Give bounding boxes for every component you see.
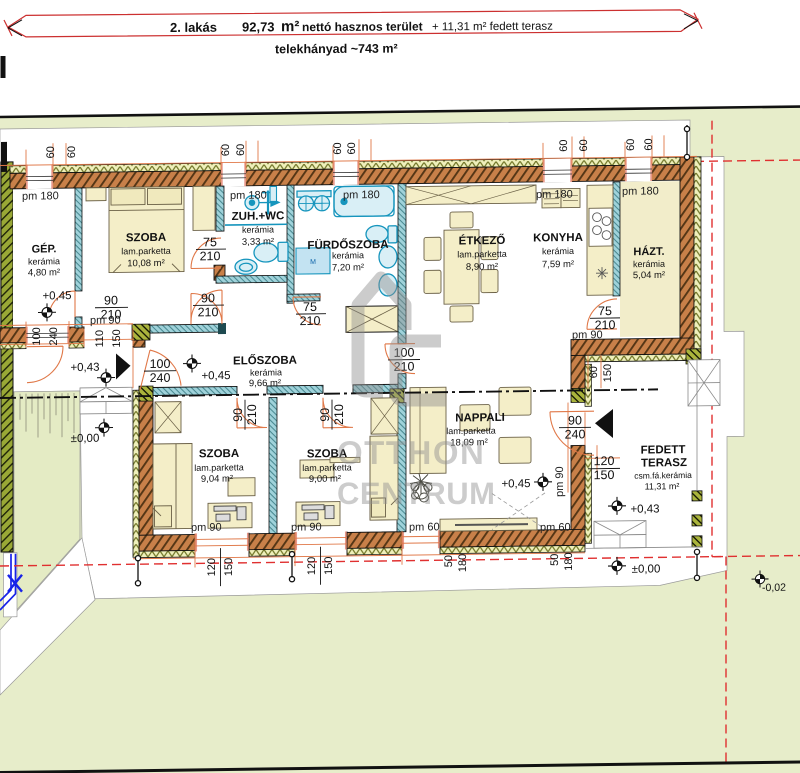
svg-text:90: 90 [201, 291, 215, 305]
svg-text:60: 60 [235, 144, 247, 156]
svg-text:60: 60 [66, 146, 78, 158]
svg-text:5,04 m²: 5,04 m² [633, 270, 665, 281]
svg-text:75: 75 [303, 300, 317, 314]
svg-text:+0,45: +0,45 [501, 478, 530, 490]
svg-text:75: 75 [598, 304, 612, 318]
svg-text:csm.fá.kerámia: csm.fá.kerámia [634, 470, 692, 481]
svg-text:kerámia: kerámia [633, 259, 665, 269]
svg-text:kerámia: kerámia [250, 367, 282, 377]
svg-text:HÁZT.: HÁZT. [633, 245, 664, 258]
svg-text:210: 210 [101, 307, 122, 321]
svg-text:kerámia: kerámia [542, 246, 574, 256]
svg-text:SZOBA: SZOBA [199, 448, 239, 461]
svg-text:pm 180: pm 180 [622, 185, 659, 197]
svg-text:±0,00: ±0,00 [71, 433, 100, 445]
svg-text:60: 60 [332, 142, 344, 154]
svg-text:120: 120 [594, 454, 615, 468]
svg-text:9,04 m²: 9,04 m² [201, 473, 233, 484]
svg-text:100: 100 [150, 357, 171, 371]
svg-text:pm 180: pm 180 [343, 189, 380, 201]
svg-text:+0,45: +0,45 [201, 370, 230, 382]
svg-text:110: 110 [94, 330, 106, 348]
svg-text:pm 60: pm 60 [409, 521, 440, 533]
svg-text:60: 60 [558, 139, 570, 151]
svg-text:ÉTKEZŐ: ÉTKEZŐ [459, 233, 506, 248]
svg-text:240: 240 [48, 327, 60, 346]
svg-text:120: 120 [206, 558, 218, 577]
svg-text:50: 50 [443, 555, 455, 567]
svg-text:90: 90 [104, 293, 118, 307]
svg-text:+0,43: +0,43 [70, 362, 99, 374]
svg-text:92,73: 92,73 [242, 19, 275, 34]
svg-text:3,33 m²: 3,33 m² [242, 236, 274, 247]
svg-text:60: 60 [588, 366, 600, 378]
svg-text:pm 60: pm 60 [540, 522, 571, 534]
svg-text:120: 120 [306, 557, 318, 576]
svg-text:NAPPALI: NAPPALI [455, 412, 505, 425]
svg-text:50: 50 [549, 554, 561, 566]
svg-text:pm 180: pm 180 [22, 190, 59, 202]
svg-text:75: 75 [203, 235, 217, 249]
svg-text:90: 90 [568, 413, 582, 427]
svg-text:8,90 m²: 8,90 m² [466, 261, 498, 272]
svg-text:60: 60 [220, 144, 232, 156]
svg-text:210: 210 [200, 249, 221, 263]
svg-text:+ 11,31 m² fedett terasz: + 11,31 m² fedett terasz [432, 21, 553, 34]
svg-text:150: 150 [602, 364, 614, 383]
svg-text:kerámia: kerámia [242, 224, 274, 234]
svg-text:150: 150 [594, 468, 615, 482]
svg-text:lam.parketta: lam.parketta [457, 249, 507, 260]
svg-text:11,31 m²: 11,31 m² [645, 481, 680, 491]
svg-text:pm 90: pm 90 [291, 521, 322, 533]
svg-text:telekhányad ~743 m²: telekhányad ~743 m² [275, 42, 398, 57]
svg-text:180: 180 [563, 552, 575, 571]
svg-text:4,80 m²: 4,80 m² [28, 267, 60, 278]
svg-text:CENTRUM: CENTRUM [337, 476, 496, 511]
svg-text:nettó hasznos terület: nettó hasznos terület [302, 19, 423, 34]
svg-text:7,20 m²: 7,20 m² [332, 262, 364, 273]
svg-text:M: M [310, 259, 316, 266]
svg-text:210: 210 [245, 404, 259, 425]
svg-text:pm 180: pm 180 [536, 189, 573, 201]
svg-text:7,59 m²: 7,59 m² [542, 259, 574, 270]
svg-text:150: 150 [323, 556, 335, 575]
svg-text:240: 240 [565, 427, 586, 441]
svg-text:90: 90 [231, 408, 245, 422]
svg-text:210: 210 [198, 305, 219, 319]
svg-text:210: 210 [595, 318, 616, 332]
svg-text:60: 60 [45, 146, 57, 158]
svg-text:10,08 m²: 10,08 m² [127, 258, 165, 269]
svg-text:60: 60 [578, 139, 590, 151]
svg-text:ZUH.+WC: ZUH.+WC [232, 210, 285, 223]
svg-text:FEDETT: FEDETT [641, 444, 686, 457]
svg-text:-0,02: -0,02 [762, 582, 786, 594]
svg-text:SZOBA: SZOBA [126, 232, 166, 245]
svg-text:100: 100 [31, 327, 43, 346]
svg-text:KONYHA: KONYHA [533, 232, 583, 245]
svg-text:90: 90 [318, 408, 332, 422]
svg-text:180: 180 [457, 554, 469, 573]
svg-text:pm 180: pm 180 [230, 190, 267, 202]
svg-text:OTTHON: OTTHON [337, 434, 485, 471]
svg-text:9,66 m²: 9,66 m² [249, 378, 281, 389]
svg-text:lam.parketta: lam.parketta [121, 246, 171, 257]
svg-text:m²: m² [281, 18, 299, 35]
svg-text:ELŐSZOBA: ELŐSZOBA [233, 353, 297, 368]
svg-text:±0,00: ±0,00 [632, 563, 661, 575]
svg-text:pm 90: pm 90 [554, 466, 566, 497]
svg-text:150: 150 [111, 329, 123, 348]
svg-text:210: 210 [300, 314, 321, 328]
svg-text:kerámia: kerámia [332, 250, 364, 260]
svg-text:TERASZ: TERASZ [641, 457, 687, 470]
svg-text:+0,43: +0,43 [630, 503, 659, 515]
svg-text:pm 90: pm 90 [191, 522, 222, 534]
svg-text:210: 210 [332, 404, 346, 425]
svg-text:60: 60 [643, 138, 655, 150]
svg-text:240: 240 [150, 371, 171, 385]
svg-text:GÉP.: GÉP. [32, 242, 57, 255]
svg-text:lam.parketta: lam.parketta [194, 462, 244, 473]
svg-text:kerámia: kerámia [28, 256, 60, 266]
svg-text:150: 150 [223, 558, 235, 577]
svg-text:+0,45: +0,45 [42, 290, 71, 302]
svg-text:2. lakás: 2. lakás [170, 20, 217, 35]
svg-text:60: 60 [625, 139, 637, 151]
svg-text:60: 60 [346, 142, 358, 154]
